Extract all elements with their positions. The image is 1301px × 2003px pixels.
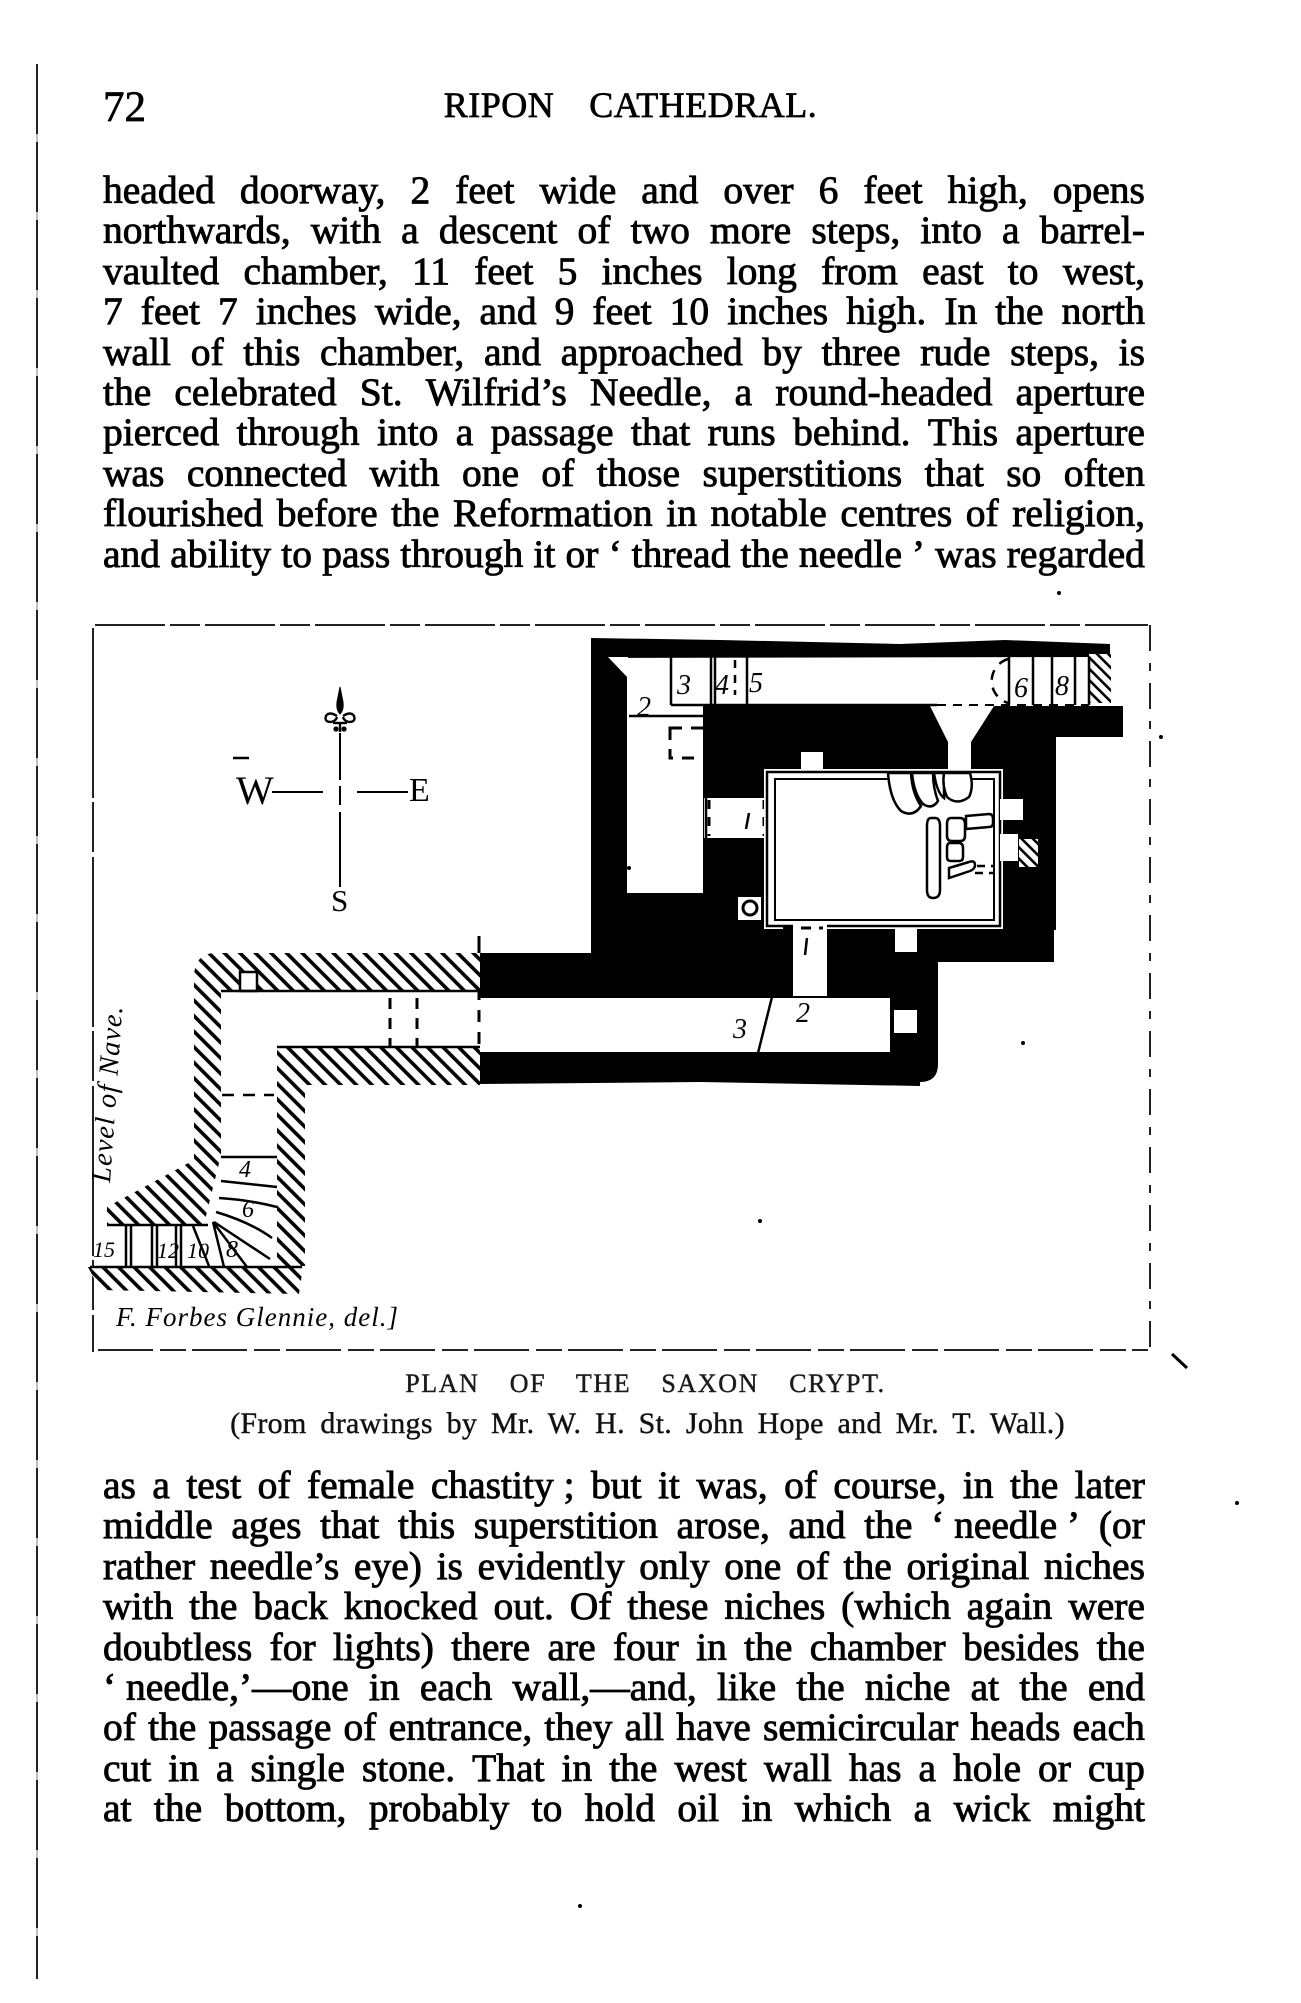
svg-text:6: 6 (242, 1197, 254, 1223)
svg-text:S: S (331, 883, 348, 918)
svg-text:F. Forbes Glennie, del.]: F. Forbes Glennie, del.] (115, 1302, 399, 1332)
svg-text:3: 3 (676, 670, 691, 701)
svg-text:3: 3 (732, 1014, 747, 1045)
svg-text:2: 2 (796, 998, 810, 1029)
svg-text:E: E (409, 772, 430, 809)
svg-text:5: 5 (749, 668, 763, 699)
svg-text:2: 2 (637, 692, 651, 723)
svg-text:W: W (236, 768, 274, 813)
svg-text:4: 4 (239, 1157, 251, 1183)
svg-text:10: 10 (187, 1238, 209, 1263)
svg-text:15: 15 (93, 1237, 115, 1262)
svg-text:12: 12 (157, 1238, 179, 1263)
svg-text:8: 8 (1055, 671, 1069, 702)
svg-text:4: 4 (715, 670, 729, 701)
svg-text:6: 6 (1014, 673, 1028, 704)
svg-text:8: 8 (226, 1237, 238, 1263)
